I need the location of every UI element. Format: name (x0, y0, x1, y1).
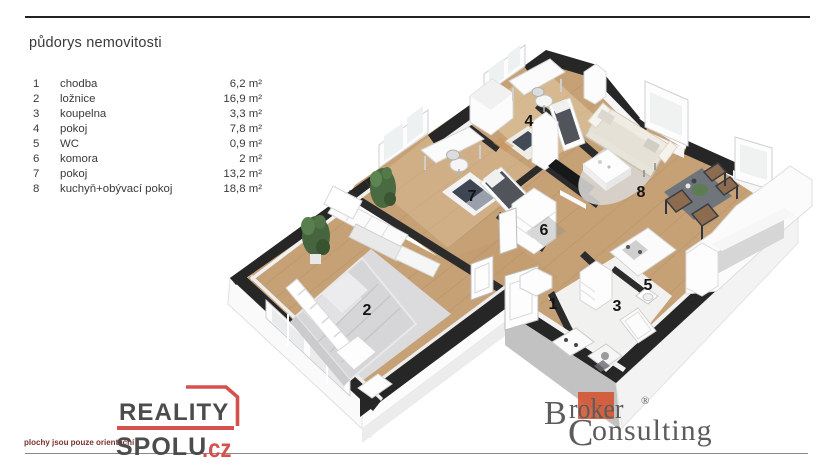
svg-text:7: 7 (468, 188, 477, 205)
svg-text:4: 4 (525, 113, 534, 130)
svg-text:3: 3 (613, 298, 622, 315)
svg-text:5: 5 (644, 277, 653, 294)
svg-text:2: 2 (363, 302, 372, 319)
svg-text:1: 1 (549, 296, 558, 313)
svg-text:8: 8 (637, 184, 646, 201)
svg-text:6: 6 (540, 222, 549, 239)
